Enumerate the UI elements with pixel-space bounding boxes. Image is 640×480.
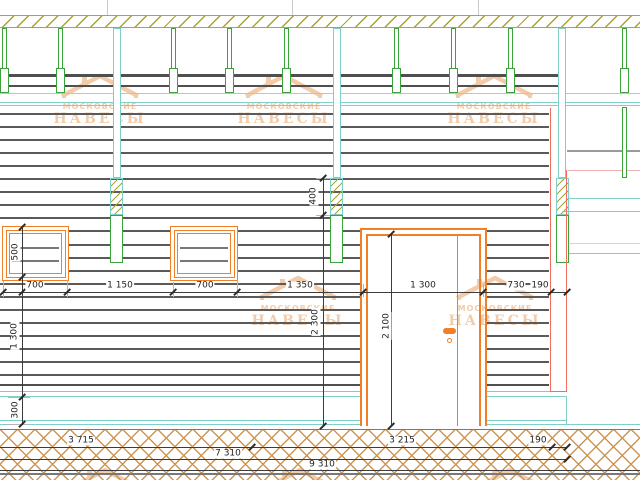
side-line-gray	[567, 150, 640, 152]
canopy-post-foot	[392, 68, 401, 93]
siding-line	[487, 309, 549, 311]
extension-line	[478, 0, 479, 15]
plinth-corner-line	[566, 397, 567, 425]
dim-label: 190	[528, 437, 547, 446]
side-post-green	[622, 107, 628, 178]
siding-line	[0, 335, 360, 337]
siding-line	[487, 348, 549, 350]
dim-label: 1 300	[11, 322, 20, 350]
canopy-post-foot	[506, 68, 515, 93]
siding-line	[487, 335, 549, 337]
dim-label: 730	[506, 282, 525, 291]
siding-line-bottom	[487, 384, 549, 387]
plinth-line	[0, 424, 360, 425]
side-line-pink	[568, 170, 640, 171]
window-2-glass-line	[180, 247, 228, 249]
siding-line	[69, 270, 170, 272]
extension-line	[292, 0, 293, 15]
door-leaf-split-line	[457, 235, 458, 426]
purlin-beam-line	[0, 85, 558, 88]
dim-label: 500	[12, 242, 21, 261]
siding-line	[0, 361, 360, 363]
plinth-line	[0, 396, 360, 397]
siding-line-bottom	[0, 384, 360, 387]
dim-label: 3 715	[67, 437, 95, 446]
canopy-post-long	[558, 28, 566, 178]
canopy-post-foot	[449, 68, 458, 93]
plinth-line	[487, 396, 567, 397]
dim-label: 1 300	[409, 282, 437, 291]
wall-corner-line-2	[566, 170, 567, 392]
side-line-teal	[563, 211, 640, 212]
window-2-glass-line	[180, 260, 228, 262]
siding-line	[487, 270, 549, 272]
siding-line	[487, 322, 549, 324]
siding-line	[0, 178, 549, 180]
plinth-line	[0, 391, 360, 392]
post-infill-hatch	[330, 178, 343, 215]
plinth-line	[0, 420, 360, 421]
dim-label: 2 100	[383, 312, 392, 340]
dim-label: 1 150	[106, 282, 134, 291]
dim-label: 9 310	[308, 460, 336, 469]
siding-line	[0, 296, 360, 298]
door-handle-keyhole-icon	[447, 338, 452, 343]
window-2	[170, 226, 238, 281]
canopy-post-foot	[282, 68, 291, 93]
dim-label: 190	[530, 282, 549, 291]
dim-label: 400	[310, 186, 319, 205]
purlin-beam-line	[0, 74, 558, 77]
siding-line	[0, 217, 549, 219]
siding-line	[0, 152, 549, 154]
canopy-post-foot	[0, 68, 9, 93]
canopy-post-long	[113, 28, 121, 178]
window-2-frame-in	[177, 233, 231, 274]
siding-line	[487, 257, 549, 259]
dim-label: 3 215	[388, 437, 416, 446]
dim-bottom-line-c	[0, 470, 640, 471]
siding-line	[487, 361, 549, 363]
dim-bottom-line-a	[0, 447, 567, 448]
siding-line	[0, 113, 549, 115]
siding-line	[487, 230, 549, 232]
dim-label: 1 350	[286, 282, 314, 291]
watermark-logo: МОСКОВСКИЕ НАВЕСЫ	[52, 70, 148, 127]
plinth-line	[487, 420, 567, 421]
post-base-box	[330, 215, 343, 263]
siding-line	[487, 244, 549, 246]
side-line-light	[570, 243, 640, 244]
siding-line	[0, 322, 360, 324]
canopy-post-foot	[169, 68, 178, 93]
siding-line	[0, 348, 360, 350]
canopy-post-foot	[225, 68, 234, 93]
dim-label: 2 300	[312, 308, 321, 336]
base-thick-line	[0, 473, 640, 476]
canopy-post-foot	[620, 68, 629, 93]
girt-line-teal	[0, 102, 640, 103]
canopy-post-foot	[56, 68, 65, 93]
siding-line	[0, 165, 549, 167]
post-base-box	[110, 215, 123, 263]
side-line-teal	[568, 198, 640, 199]
siding-line	[487, 296, 549, 298]
side-line-teal	[567, 253, 640, 254]
girt-line-green	[0, 93, 640, 95]
dim-bottom-line-b	[0, 459, 567, 460]
siding-line	[0, 309, 360, 311]
plinth-line	[487, 424, 640, 425]
dim-label: 700	[195, 282, 214, 291]
siding-line	[0, 374, 360, 376]
siding-line	[487, 374, 549, 376]
siding-line	[0, 139, 549, 141]
elevation-drawing-canvas: 700 1 150 700 1 350 1 300 730 190 500 1 …	[0, 0, 640, 480]
watermark-logo: МОСКОВСКИЕ НАВЕСЫ	[446, 70, 542, 127]
siding-line	[0, 191, 549, 193]
siding-line	[238, 270, 360, 272]
siding-line	[0, 126, 549, 128]
extension-line	[107, 0, 108, 15]
canopy-post-long	[333, 28, 341, 178]
dim-label: 7 310	[214, 450, 242, 459]
wall-corner-line	[550, 108, 551, 392]
roof-fascia-band	[0, 15, 640, 28]
dim-label: 300	[12, 400, 21, 419]
door-handle-icon	[443, 328, 456, 334]
dim-label: 700	[25, 282, 44, 291]
siding-line	[0, 204, 549, 206]
wall-corner-step	[550, 391, 568, 392]
girt-line-teal	[0, 105, 640, 106]
post-infill-hatch	[110, 178, 123, 215]
